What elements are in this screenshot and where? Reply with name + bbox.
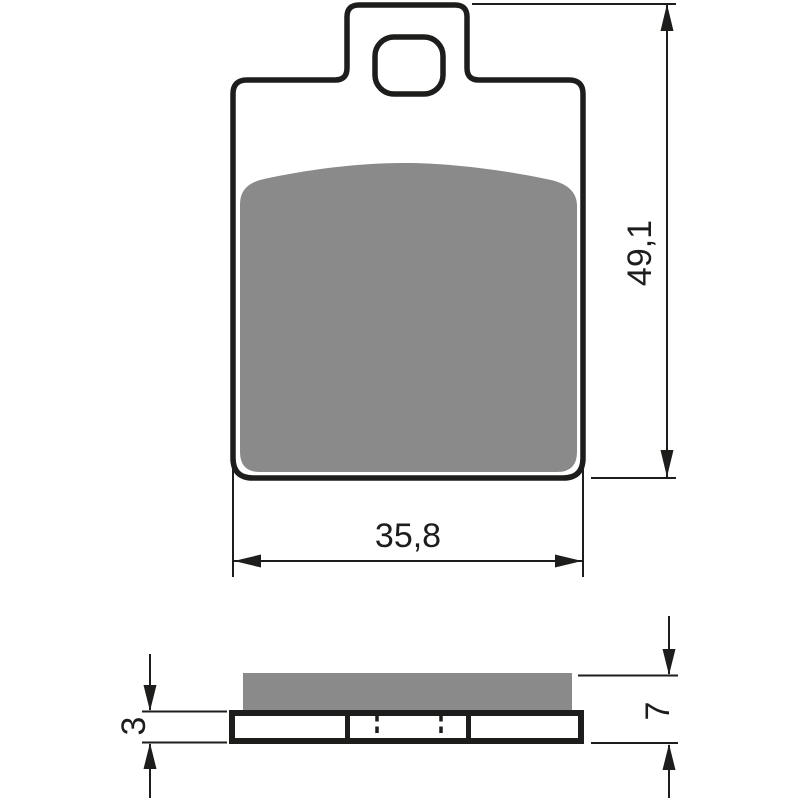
dimension-total-thickness: 7: [578, 616, 678, 798]
friction-material-front: [240, 163, 577, 472]
friction-material-side: [243, 673, 572, 712]
front-view: [233, 5, 583, 478]
total-arrow-down: [663, 649, 676, 675]
total-thickness-label: 7: [639, 702, 677, 721]
height-arrow-top: [661, 4, 674, 31]
total-arrow-up: [663, 744, 676, 770]
height-dimension-label: 49,1: [621, 220, 659, 286]
dimension-plate-thickness: 3: [115, 654, 227, 798]
mounting-tab-hole: [375, 37, 443, 94]
side-view: [232, 673, 581, 741]
plate-arrow-up: [144, 743, 157, 769]
height-arrow-bottom: [661, 450, 674, 477]
width-arrow-left: [234, 555, 261, 568]
technical-drawing-page: 49,1 35,8 3: [0, 0, 800, 800]
backing-plate-side: [232, 713, 581, 741]
brake-pad-drawing: 49,1 35,8 3: [0, 0, 800, 800]
width-arrow-right: [555, 555, 582, 568]
plate-thickness-label: 3: [115, 717, 153, 736]
dimension-width: 35,8: [233, 469, 583, 577]
plate-arrow-down: [144, 685, 157, 711]
width-dimension-label: 35,8: [375, 517, 441, 555]
